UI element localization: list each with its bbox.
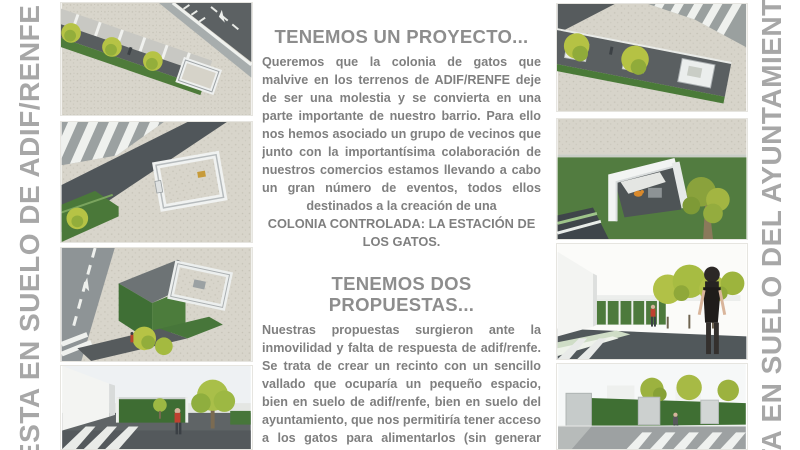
render-parking-aerial-thumb — [60, 2, 253, 116]
render-street-view-thumb — [60, 365, 253, 450]
section2-body: Nuestras propuestas surgieron ante la in… — [262, 321, 541, 450]
render-street-green-wall-image — [557, 364, 747, 449]
section1-emphasis: COLONIA CONTROLADA: LA ESTACIÓN DE LOS G… — [262, 215, 541, 251]
section1-heading: TENEMOS UN PROYECTO... — [262, 0, 541, 51]
left-sidebar-vertical-text: ESTA EN SUELO DE ADIF/RENFE — [14, 5, 46, 450]
render-sidewalk-trees-aerial-image — [557, 4, 747, 111]
poster-page: ESTA EN SUELO DE ADIF/RENFE TA EN SUELO … — [0, 0, 800, 450]
render-enclosure-aerial-thumb — [60, 121, 253, 243]
render-enclosure-aerial-image — [61, 122, 252, 242]
render-street-green-wall-thumb — [556, 363, 748, 450]
section1-body: Queremos que la colonia de gatos que mal… — [262, 53, 541, 215]
render-green-wall-aerial-thumb — [60, 247, 253, 362]
render-green-wall-aerial-image — [61, 248, 252, 361]
render-street-view-image — [61, 366, 252, 449]
right-sidebar-vertical-text: TA EN SUELO DEL AYUNTAMIENTO — [756, 0, 788, 450]
render-street-pedestrians-thumb — [556, 243, 748, 360]
render-parking-aerial-image — [61, 3, 252, 115]
section2-heading: TENEMOS DOS PROPUESTAS... — [262, 251, 541, 319]
render-enclosure-closeup-thumb — [556, 118, 748, 240]
render-sidewalk-trees-aerial-thumb — [556, 3, 748, 112]
render-street-pedestrians-image — [557, 244, 747, 359]
render-enclosure-closeup-image — [557, 119, 747, 239]
article-column: TENEMOS UN PROYECTO... Queremos que la c… — [262, 0, 541, 450]
